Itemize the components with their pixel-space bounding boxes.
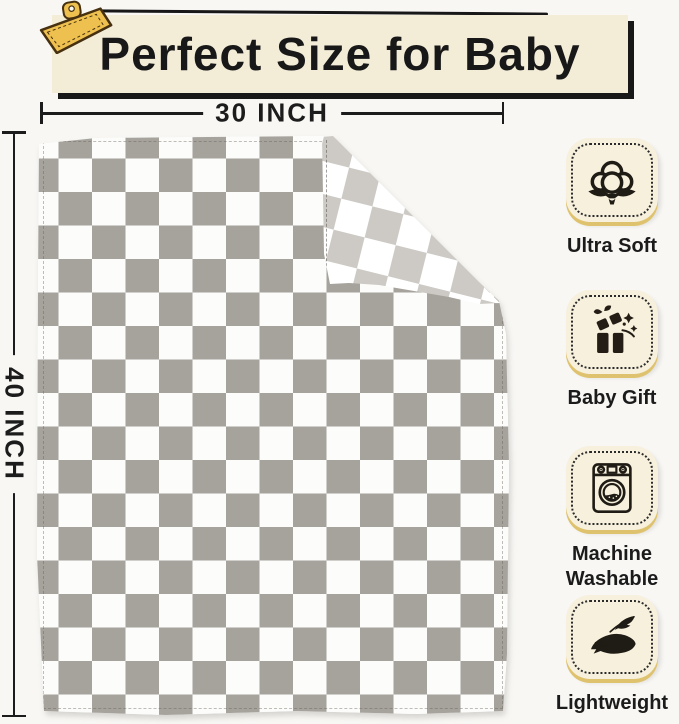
blanket-folded-corner: [319, 134, 510, 309]
height-dimension-label: 40 INCH: [0, 355, 30, 493]
width-dimension-right-tick: [502, 102, 505, 124]
width-dimension-label: 30 INCH: [203, 98, 341, 129]
feature-machine-washable: Machine Washable: [549, 446, 675, 592]
blanket-front: [36, 134, 510, 716]
width-dimension-left-tick: [40, 102, 43, 124]
machine-washable-badge: [566, 446, 658, 530]
product-infographic: Perfect Size for Baby 30 INCH 40 INCH: [0, 0, 679, 724]
feature-label-baby-gift: Baby Gift: [549, 386, 675, 411]
gift-icon: [583, 304, 641, 360]
clipboard-clip-icon: [32, 0, 116, 54]
baby-gift-badge: [566, 290, 658, 374]
feather-icon: [583, 609, 641, 665]
lightweight-badge: [566, 595, 658, 679]
height-dimension-bottom-tick: [2, 715, 26, 718]
feature-baby-gift: Baby Gift: [549, 290, 675, 411]
feature-label-lightweight: Lightweight: [549, 691, 675, 716]
washing-machine-icon: [584, 460, 640, 516]
width-dimension: 30 INCH: [40, 102, 504, 124]
blanket-hem-stitching: [43, 141, 503, 709]
page-title: Perfect Size for Baby: [99, 27, 580, 81]
feature-label-ultra-soft: Ultra Soft: [549, 234, 675, 259]
height-dimension-top-tick: [2, 131, 26, 134]
feature-lightweight: Lightweight: [549, 595, 675, 716]
flap-hem-stitching: [326, 140, 327, 281]
cotton-icon: [583, 152, 641, 208]
height-dimension: 40 INCH: [2, 131, 26, 717]
title-banner: Perfect Size for Baby: [52, 15, 628, 93]
feature-ultra-soft: Ultra Soft: [549, 138, 675, 259]
ultra-soft-badge: [566, 138, 658, 222]
blanket-photo: [36, 134, 510, 716]
feature-label-machine-washable: Machine Washable: [549, 542, 675, 592]
